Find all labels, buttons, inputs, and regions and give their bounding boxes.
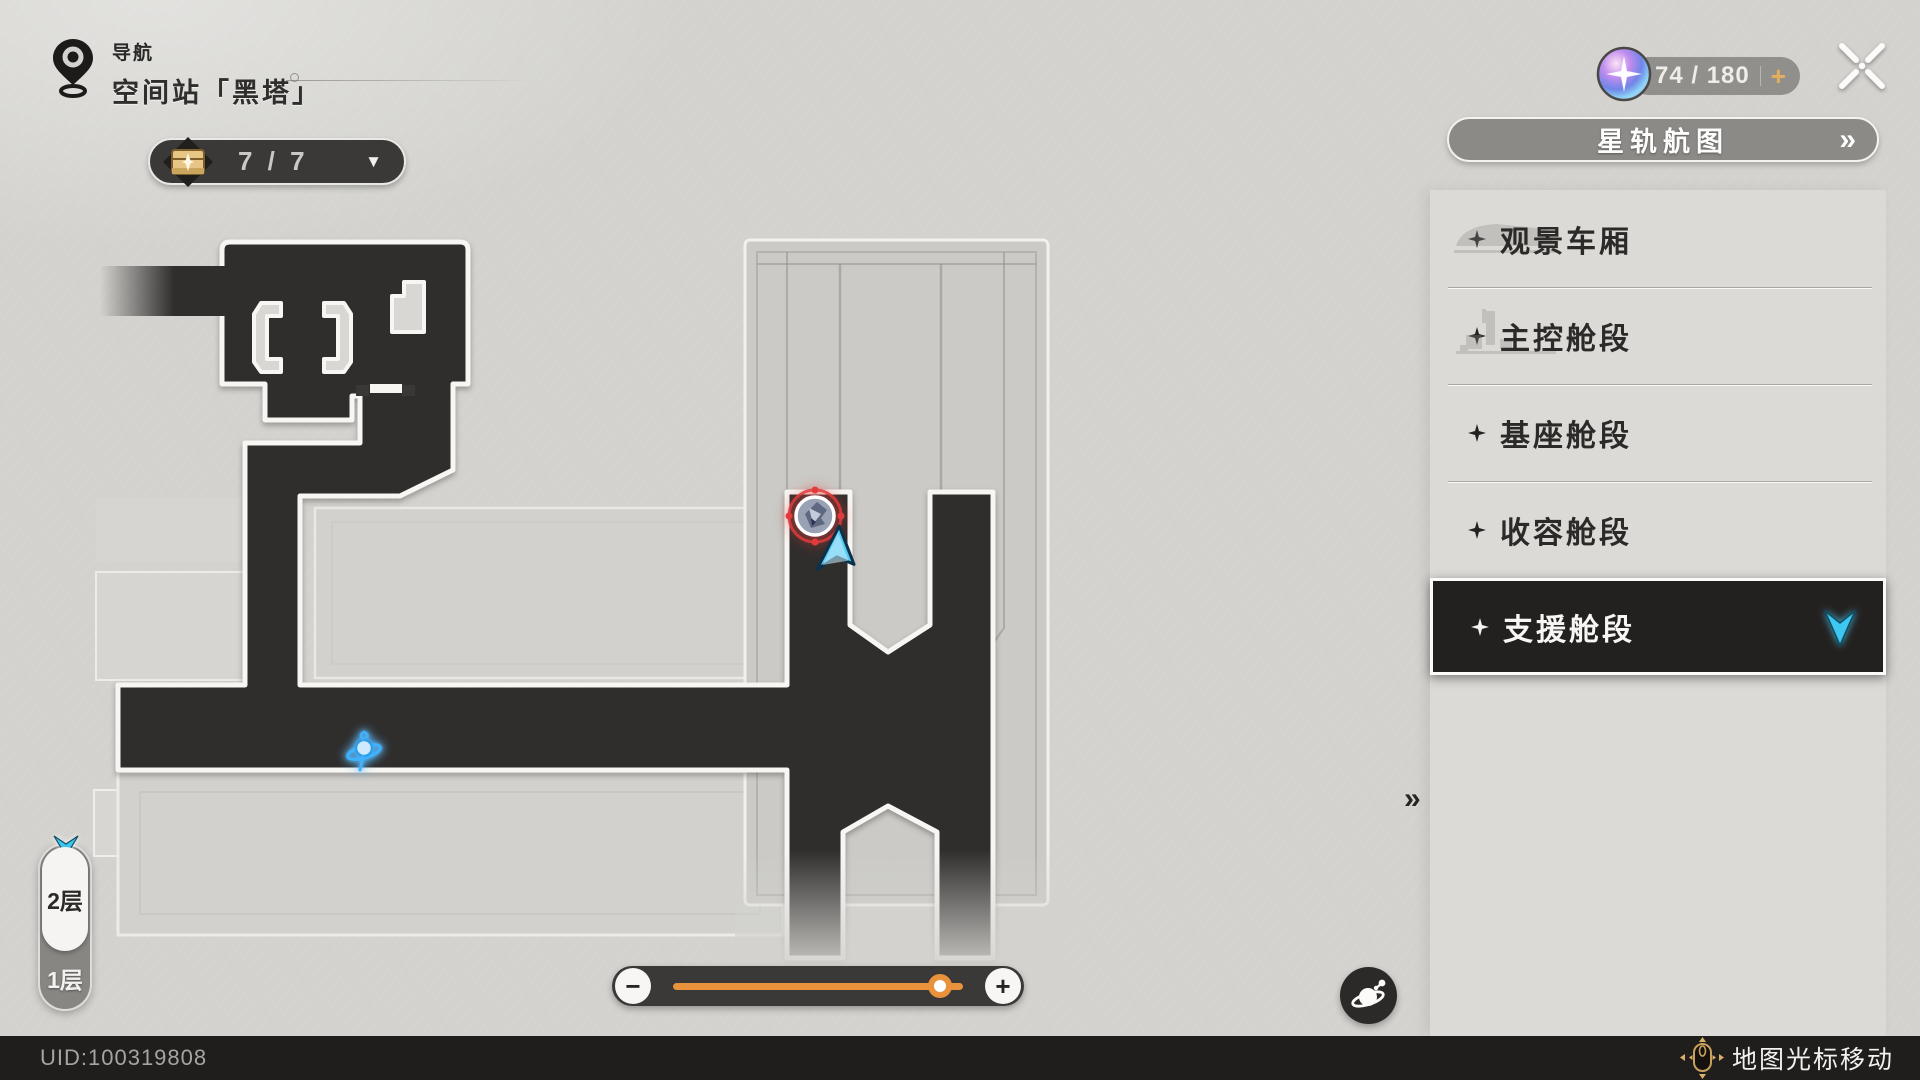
zone-item-observation-car[interactable]: 观景车厢 [1430,190,1886,287]
treasure-chest-icon [162,136,214,188]
zoom-in-button[interactable]: + [985,968,1021,1004]
zone-item-storage[interactable]: 收容舱段 [1430,481,1886,578]
zone-item-label: 收容舱段 [1500,508,1632,552]
zone-item-master-control[interactable]: 主控舱段 [1430,287,1886,384]
zone-item-supply-selected[interactable]: 支援舱段 [1430,578,1886,675]
stamina-divider [1760,66,1761,86]
zone-item-base[interactable]: 基座舱段 [1430,384,1886,481]
selected-pointer-icon: » [1404,782,1417,816]
trailblaze-power-icon [1596,46,1652,102]
star-bullet-icon [1468,521,1486,539]
floor-2-button[interactable]: 2层 [42,847,88,951]
zone-item-label: 支援舱段 [1503,605,1635,649]
add-stamina-button[interactable]: + [1771,63,1786,89]
map-arm [100,266,234,316]
map-door-gap [370,384,402,393]
uid-text: UID:100319808 [40,1045,207,1071]
header: 导航 空间站「黑塔」 [52,38,322,110]
zoom-slider: − + [612,966,1024,1006]
map-cursor-hint: 地图光标移动 [1732,1040,1894,1076]
zoom-knob[interactable] [928,974,952,998]
star-rail-chart-button[interactable]: 星轨航图 » [1447,117,1879,162]
star-bullet-icon [1468,424,1486,442]
chevron-down-icon[interactable]: ▼ [365,152,382,172]
double-chevron-right-icon: » [1839,123,1853,157]
map-screen: 导航 空间站「黑塔」 7 / 7 ▼ 74 / 180 + [0,0,1920,1080]
nav-pin-icon [52,38,94,100]
zoom-out-button[interactable]: − [615,968,651,1004]
nav-label: 导航 [112,38,322,65]
stamina-value: 74 / 180 [1655,62,1750,90]
chest-count: 7 / 7 [238,146,309,177]
zone-item-label: 主控舱段 [1500,314,1632,358]
planet-view-button[interactable] [1340,967,1397,1024]
cyan-chevron-down-icon [1823,609,1857,649]
floor-1-button[interactable]: 1层 [40,961,90,995]
stamina-pill: 74 / 180 + [1629,57,1800,95]
enemy-marker[interactable] [783,484,847,548]
zone-item-label: 观景车厢 [1500,217,1632,261]
chest-counter[interactable]: 7 / 7 ▼ [148,138,406,185]
planet-icon [1349,976,1389,1016]
floor-selector: 2层 1层 [38,843,92,1011]
zoom-track[interactable] [673,983,963,990]
close-icon[interactable] [1834,42,1890,94]
mouse-move-icon [1680,1037,1724,1079]
star-bullet-icon [1471,618,1489,636]
star-rail-chart-label: 星轨航图 [1597,120,1729,159]
zone-list-panel: 观景车厢 主控舱段 基座舱段 收容舱段 [1430,190,1886,1036]
bottom-bar: UID:100319808 地图光标移动 [0,1036,1920,1080]
zone-item-label: 基座舱段 [1500,411,1632,455]
space-anchor-gyro-icon[interactable] [342,726,386,774]
header-divider [286,80,534,81]
header-divider-ring [290,73,299,82]
